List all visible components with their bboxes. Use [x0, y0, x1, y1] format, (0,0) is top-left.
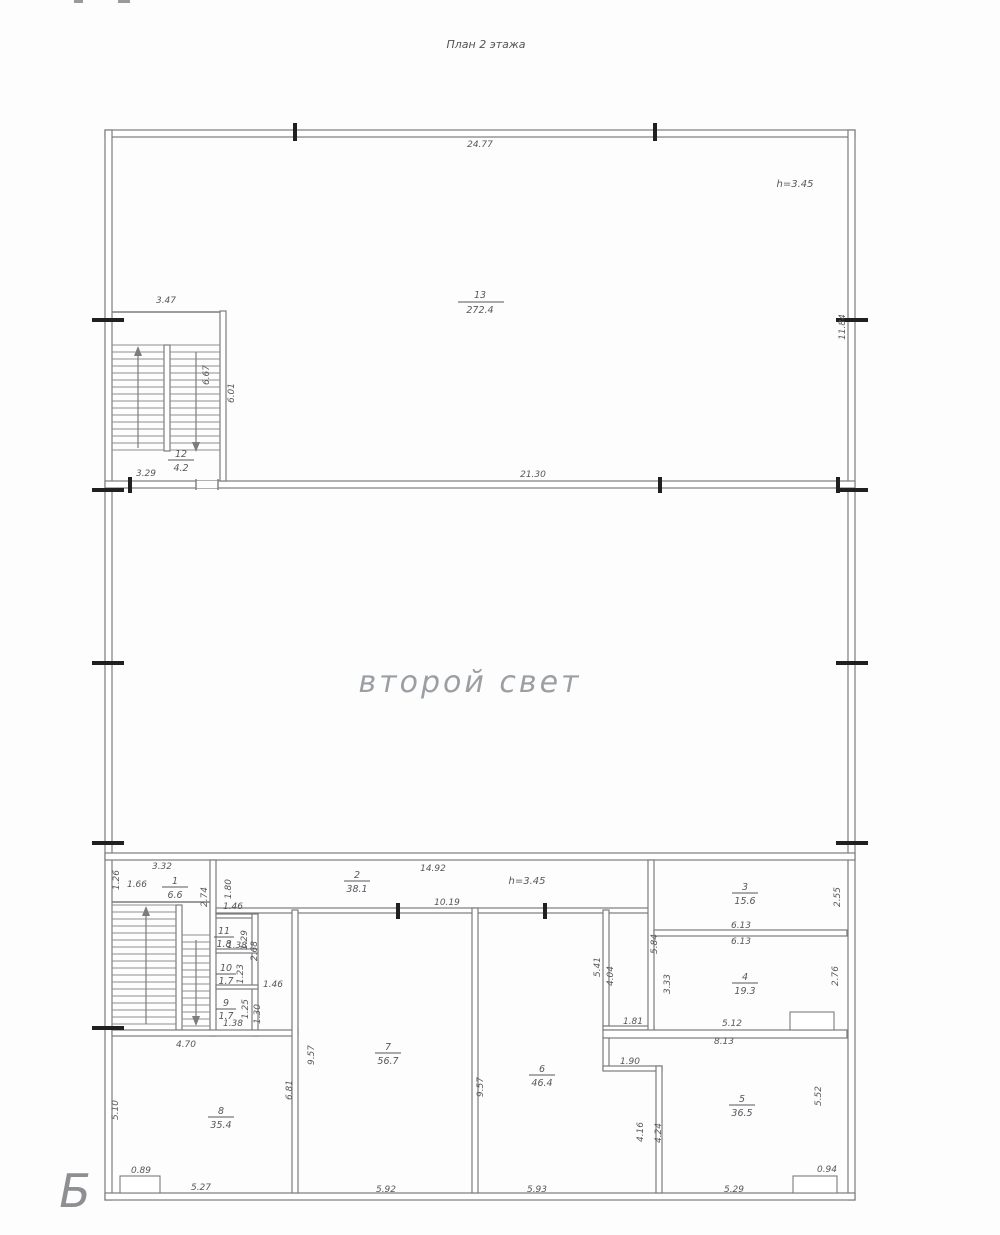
- dim-bottom-3: 5.93: [527, 1185, 547, 1195]
- dim-top-width: 24.77: [467, 140, 493, 150]
- dim-126: 1.26: [112, 870, 122, 890]
- stair-door-gap: [196, 481, 218, 488]
- dim-613b: 6.13: [731, 937, 751, 947]
- dim-181: 1.81: [623, 1017, 643, 1027]
- room13-number: 13: [474, 290, 486, 301]
- room7-area: 56.7: [377, 1056, 398, 1067]
- dim-146b: 1.46: [263, 980, 283, 990]
- dim-470: 4.70: [176, 1040, 196, 1050]
- stair-enclosure-right-wall: [220, 311, 226, 481]
- dim-right-wall: 11.84: [838, 314, 848, 340]
- tick-left-5: [92, 1026, 124, 1030]
- floor-plan-svg: План 2 этажа: [0, 0, 1000, 1235]
- tick-right-4: [836, 841, 868, 845]
- wall-room7-room6: [472, 908, 478, 1193]
- dim-130: 1.30: [253, 1004, 263, 1024]
- room-label-6: 6 46.4: [529, 1064, 555, 1089]
- tick-right-3: [836, 661, 868, 665]
- dim-813: 8.13: [714, 1037, 734, 1047]
- room8-number: 8: [218, 1106, 224, 1117]
- pocket-left-wall: [603, 1038, 609, 1070]
- tick-corridor-1: [396, 903, 400, 919]
- room-label-1: 1 6.6: [162, 876, 188, 901]
- stairwell-upper: [112, 311, 226, 490]
- room-label-7: 7 56.7: [375, 1042, 401, 1067]
- room-label-10: 10 1.7: [216, 963, 236, 987]
- room-label-8: 8 35.4: [208, 1106, 234, 1131]
- wall-top: [105, 130, 855, 137]
- stair-lower-arrow-up-head: [142, 906, 150, 916]
- room2-number: 2: [354, 870, 360, 881]
- dim-stair-bottom: 3.29: [136, 469, 156, 479]
- stair-divider-upper: [164, 345, 170, 451]
- scan-marks: [74, 0, 130, 3]
- dim-276: 2.76: [831, 966, 841, 986]
- dim-613a: 6.13: [731, 921, 751, 931]
- dim-125: 1.25: [241, 999, 251, 1019]
- stair-arrow-up-head: [134, 346, 142, 356]
- room5-area: 36.5: [731, 1108, 752, 1119]
- dim-333: 3.33: [663, 974, 673, 994]
- tick-left-1: [92, 318, 124, 322]
- stair-treads-upper-right: [170, 345, 220, 450]
- room12-number: 12: [175, 449, 187, 460]
- dim-957b: 9.57: [476, 1077, 486, 1097]
- dim-552: 5.52: [814, 1086, 824, 1106]
- dim-146a: 1.46: [223, 902, 243, 912]
- tick-right-2: [836, 488, 868, 492]
- dim-268: 2.68: [250, 941, 260, 961]
- room1-number: 1: [172, 876, 178, 887]
- dim-166: 1.66: [127, 880, 147, 890]
- axis-label-b: Б: [59, 1164, 91, 1218]
- dim-541: 5.41: [593, 957, 603, 977]
- room5-number: 5: [739, 1094, 745, 1105]
- room8-top-wall: [112, 1030, 298, 1036]
- wall-mid-lower: [105, 853, 855, 860]
- stair-divider-lower: [176, 905, 182, 1030]
- tick-mid-1: [128, 477, 132, 493]
- dim-180: 1.80: [224, 879, 234, 899]
- stair-lower-arrow-down-head: [192, 1016, 200, 1026]
- room-label-12: 12 4.2: [168, 449, 194, 474]
- dim-mid-width: 21.30: [520, 470, 546, 480]
- room2-area: 38.1: [346, 884, 367, 895]
- room1-right-wall: [210, 860, 216, 1036]
- dim-block-left: 3.32: [152, 862, 172, 872]
- tick-top-2: [653, 123, 657, 141]
- dim-123: 1.23: [236, 964, 246, 984]
- dim-510: 5.10: [111, 1100, 121, 1120]
- dim-404: 4.04: [606, 966, 616, 986]
- room1-area: 6.6: [167, 890, 182, 901]
- room9-number: 9: [223, 998, 229, 1009]
- dim-416: 4.16: [636, 1122, 646, 1142]
- room13-area: 272.4: [466, 305, 493, 316]
- dim-bottom-4: 5.29: [724, 1185, 744, 1195]
- dim-138b: 1.38: [223, 1019, 243, 1029]
- dim-957a: 9.57: [307, 1045, 317, 1065]
- dim-corridor: 10.19: [434, 898, 460, 908]
- room4-door: [790, 1012, 834, 1030]
- dim-424: 4.24: [654, 1123, 664, 1143]
- dim-584: 5.84: [650, 934, 660, 954]
- room4-area: 19.3: [734, 986, 755, 997]
- dim-681: 6.81: [285, 1080, 295, 1100]
- dim-bottom-2: 5.92: [376, 1185, 396, 1195]
- dim-room2-width: 14.92: [420, 864, 446, 874]
- tick-corridor-2: [543, 903, 547, 919]
- tick-top-1: [293, 123, 297, 141]
- room-label-13: 13 272.4: [458, 290, 504, 316]
- dim-094: 0.94: [817, 1165, 837, 1175]
- room12-area: 4.2: [173, 463, 188, 474]
- room8-area: 35.4: [210, 1120, 231, 1131]
- room10-number: 10: [220, 963, 232, 974]
- height-note-upper: h=3.45: [777, 179, 814, 190]
- dim-stair-depth: 6.01: [227, 383, 237, 403]
- room-label-5: 5 36.5: [729, 1094, 755, 1119]
- stair-treads-lower-left: [112, 905, 176, 1024]
- dim-bottom-1: 5.27: [191, 1183, 211, 1193]
- room-label-4: 4 19.3: [732, 972, 758, 997]
- dim-274: 2.74: [200, 887, 210, 907]
- room7-left-wall: [292, 910, 298, 1193]
- room11-number: 11: [218, 926, 230, 937]
- tick-left-4: [92, 841, 124, 845]
- room3-area: 15.6: [734, 896, 755, 907]
- tick-mid-2: [658, 477, 662, 493]
- void-space-label: второй свет: [358, 665, 581, 700]
- dim-255: 2.55: [833, 887, 843, 907]
- door-089: [120, 1176, 160, 1193]
- door-094: [793, 1176, 837, 1193]
- dim-129: 1.29: [240, 930, 250, 950]
- dim-stair-run: 6.67: [202, 365, 212, 385]
- corridor-bottom-wall: [216, 908, 652, 913]
- dim-stair-width: 3.47: [156, 296, 176, 306]
- height-note-lower: h=3.45: [509, 876, 546, 887]
- room3-number: 3: [742, 882, 748, 893]
- dim-512: 5.12: [722, 1019, 742, 1029]
- room-label-2: 2 38.1: [344, 870, 370, 895]
- room7-number: 7: [385, 1042, 391, 1053]
- tick-mid-3: [836, 477, 840, 493]
- tick-left-2: [92, 488, 124, 492]
- dim-089: 0.89: [131, 1166, 151, 1176]
- drawing-sheet: План 2 этажа: [0, 0, 1000, 1235]
- dim-190: 1.90: [620, 1057, 640, 1067]
- tick-left-3: [92, 661, 124, 665]
- room6-area: 46.4: [531, 1078, 552, 1089]
- room-label-3: 3 15.6: [732, 882, 758, 907]
- room6-number: 6: [539, 1064, 545, 1075]
- room10-area: 1.7: [218, 976, 233, 987]
- room4-number: 4: [742, 972, 748, 983]
- drawing-title: План 2 этажа: [446, 38, 525, 51]
